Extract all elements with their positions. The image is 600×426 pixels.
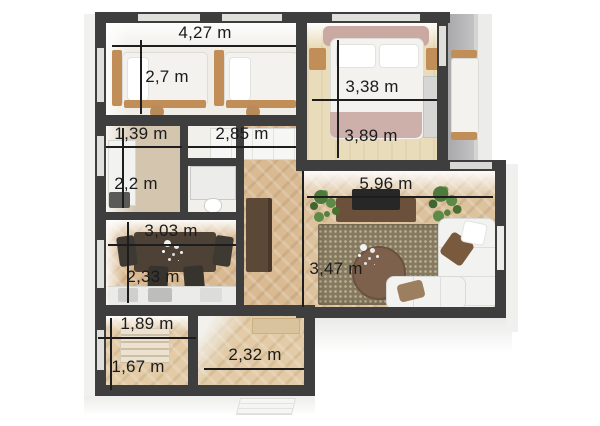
- wall-kids-bedroom-divider: [296, 12, 307, 171]
- sofa-pillow-white: [460, 220, 488, 247]
- dimension-line: [204, 368, 304, 370]
- dimension-kids-bedroom-width: 4,27 m: [178, 23, 231, 43]
- dimension-storage-depth: 1,67 m: [111, 357, 164, 377]
- outer-face-bottom-right: [296, 318, 512, 354]
- corridor-cabinet: [246, 198, 272, 272]
- outer-face-right: [506, 164, 518, 332]
- balcony-bed: [451, 58, 479, 134]
- wall-bottom: [95, 385, 315, 396]
- wall-bathroom-bottom: [95, 212, 244, 220]
- toilet: [204, 198, 222, 213]
- bed-pillow: [336, 44, 376, 68]
- single-bed-headboard: [112, 50, 122, 106]
- outer-face-left: [84, 14, 95, 396]
- dimension-line: [127, 222, 129, 303]
- stove: [148, 288, 172, 302]
- wall-bathroom-right: [180, 126, 188, 212]
- dimension-living-depth: 3,47 m: [309, 259, 362, 279]
- dimension-line: [106, 146, 182, 148]
- single-bed-headboard: [214, 50, 224, 106]
- dimension-bedroom-width: 3,38 m: [345, 77, 398, 97]
- single-bed-rail: [226, 100, 296, 108]
- counter-appliance: [200, 288, 222, 302]
- nightstand: [309, 48, 326, 70]
- dimension-line: [122, 128, 124, 208]
- dimension-line: [110, 318, 112, 390]
- door-mat: [252, 318, 300, 334]
- window: [97, 240, 104, 288]
- dimension-kitchen-width: 3,03 m: [144, 221, 197, 241]
- dimension-line: [188, 146, 296, 148]
- dimension-hallway-width: 2,85 m: [215, 124, 268, 144]
- wall-wc-top: [184, 158, 236, 166]
- plant: [304, 182, 340, 228]
- window: [222, 14, 282, 21]
- dimension-storage-width: 1,89 m: [120, 314, 173, 334]
- bed-pillow: [379, 44, 419, 68]
- dimension-line: [302, 171, 304, 307]
- wall-entry-right: [304, 316, 315, 396]
- living-room-door: [497, 226, 504, 270]
- dimension-line: [98, 337, 196, 339]
- single-bed-rail: [124, 100, 206, 108]
- balcony-door: [439, 26, 446, 66]
- dimension-entry-width: 2,32 m: [228, 345, 281, 365]
- shower: [190, 166, 236, 200]
- dimension-line: [140, 40, 142, 114]
- wall-living-bottom: [296, 307, 506, 318]
- window: [97, 136, 104, 176]
- dimension-living-width: 5,96 m: [359, 174, 412, 194]
- balcony-outer-face: [478, 14, 492, 170]
- window: [450, 162, 492, 169]
- window: [138, 14, 200, 21]
- dimension-bathroom-depth: 2,2 m: [114, 174, 158, 194]
- balcony-bed-board: [451, 50, 477, 58]
- dimension-bedroom-depth: 3,89 m: [344, 126, 397, 146]
- dimension-line: [307, 196, 493, 198]
- dimension-kids-bedroom-depth: 2,7 m: [145, 67, 189, 87]
- entrance-step: [236, 398, 296, 415]
- window: [97, 48, 104, 102]
- dimension-line: [312, 99, 437, 101]
- floor-plan: 4,27 m 2,7 m 3,38 m 3,89 m 1,39 m 2,2 m …: [0, 0, 600, 426]
- wall-storage-entry-divider: [188, 316, 198, 385]
- dimension-kitchen-depth: 2,33 m: [126, 267, 179, 287]
- balcony-bed-board: [451, 132, 477, 140]
- window: [332, 14, 420, 21]
- window: [97, 330, 104, 370]
- washing-machine: [109, 192, 130, 208]
- bed-pillow: [229, 57, 251, 101]
- wall-kitchen-right: [236, 126, 244, 305]
- dimension-line: [337, 40, 339, 158]
